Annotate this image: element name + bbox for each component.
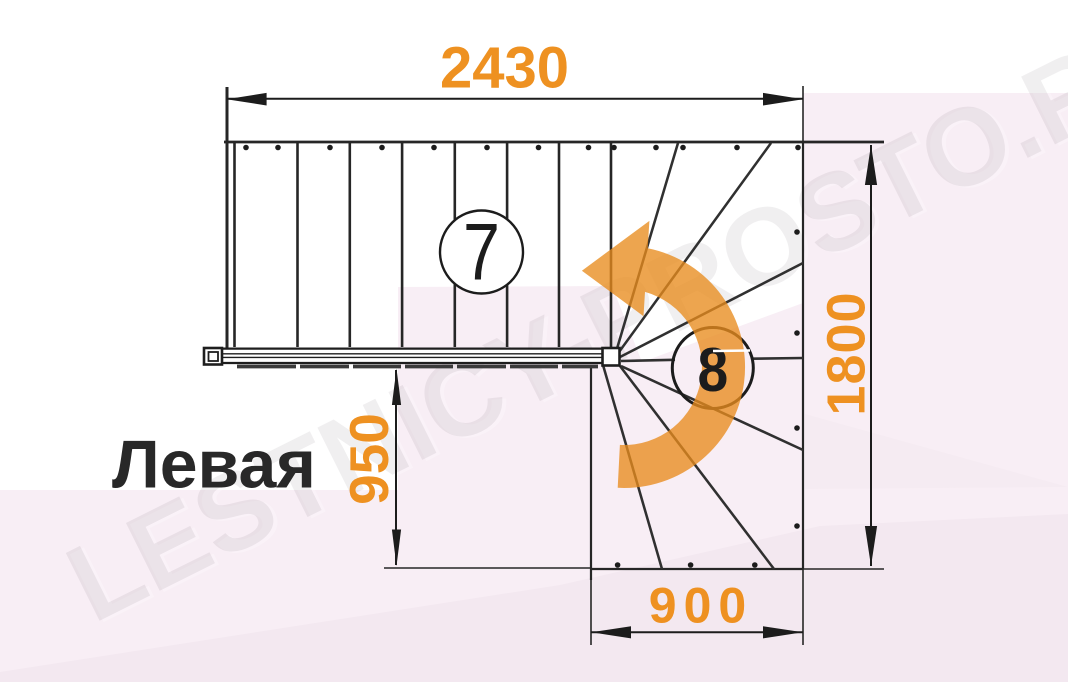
svg-text:950: 950	[338, 413, 400, 505]
svg-text:2430: 2430	[440, 36, 569, 101]
svg-text:8: 8	[697, 336, 728, 405]
svg-text:7: 7	[463, 206, 500, 297]
svg-text:Левая: Левая	[112, 427, 316, 503]
svg-text:900: 900	[649, 578, 753, 634]
svg-text:1800: 1800	[817, 291, 877, 415]
